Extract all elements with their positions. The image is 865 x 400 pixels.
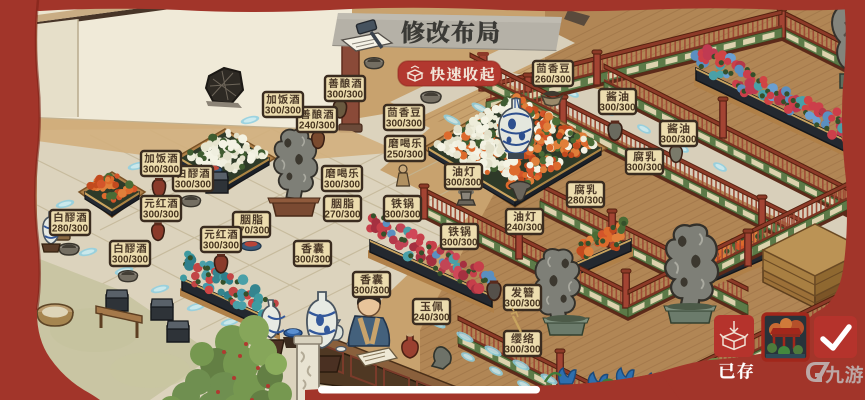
- svg-text:300/300: 300/300: [175, 179, 212, 190]
- svg-text:280/300: 280/300: [52, 223, 89, 234]
- svg-text:300/300: 300/300: [324, 179, 361, 190]
- svg-text:300/300: 300/300: [386, 118, 423, 129]
- svg-text:300/300: 300/300: [327, 89, 364, 100]
- svg-text:270/300: 270/300: [324, 209, 361, 220]
- svg-text:300/300: 300/300: [265, 105, 302, 116]
- svg-text:300/300: 300/300: [660, 134, 697, 145]
- svg-text:250/300: 250/300: [387, 149, 424, 160]
- svg-text:300/300: 300/300: [445, 177, 482, 188]
- svg-text:300/300: 300/300: [441, 237, 478, 248]
- svg-text:240/300: 240/300: [299, 120, 336, 131]
- svg-text:300/300: 300/300: [143, 164, 180, 175]
- svg-text:260/300: 260/300: [535, 74, 572, 85]
- svg-text:300/300: 300/300: [294, 254, 331, 265]
- svg-text:240/300: 240/300: [506, 222, 543, 233]
- svg-text:300/300: 300/300: [112, 254, 149, 265]
- svg-text:240/300: 240/300: [413, 312, 450, 323]
- svg-text:300/300: 300/300: [504, 344, 541, 355]
- svg-text:300/300: 300/300: [599, 102, 636, 113]
- svg-text:300/300: 300/300: [203, 240, 240, 251]
- svg-text:300/300: 300/300: [626, 162, 663, 173]
- svg-text:280/300: 280/300: [567, 195, 604, 206]
- svg-text:300/300: 300/300: [504, 298, 541, 309]
- svg-text:300/300: 300/300: [143, 209, 180, 220]
- svg-text:300/300: 300/300: [353, 285, 390, 296]
- svg-text:300/300: 300/300: [384, 209, 421, 220]
